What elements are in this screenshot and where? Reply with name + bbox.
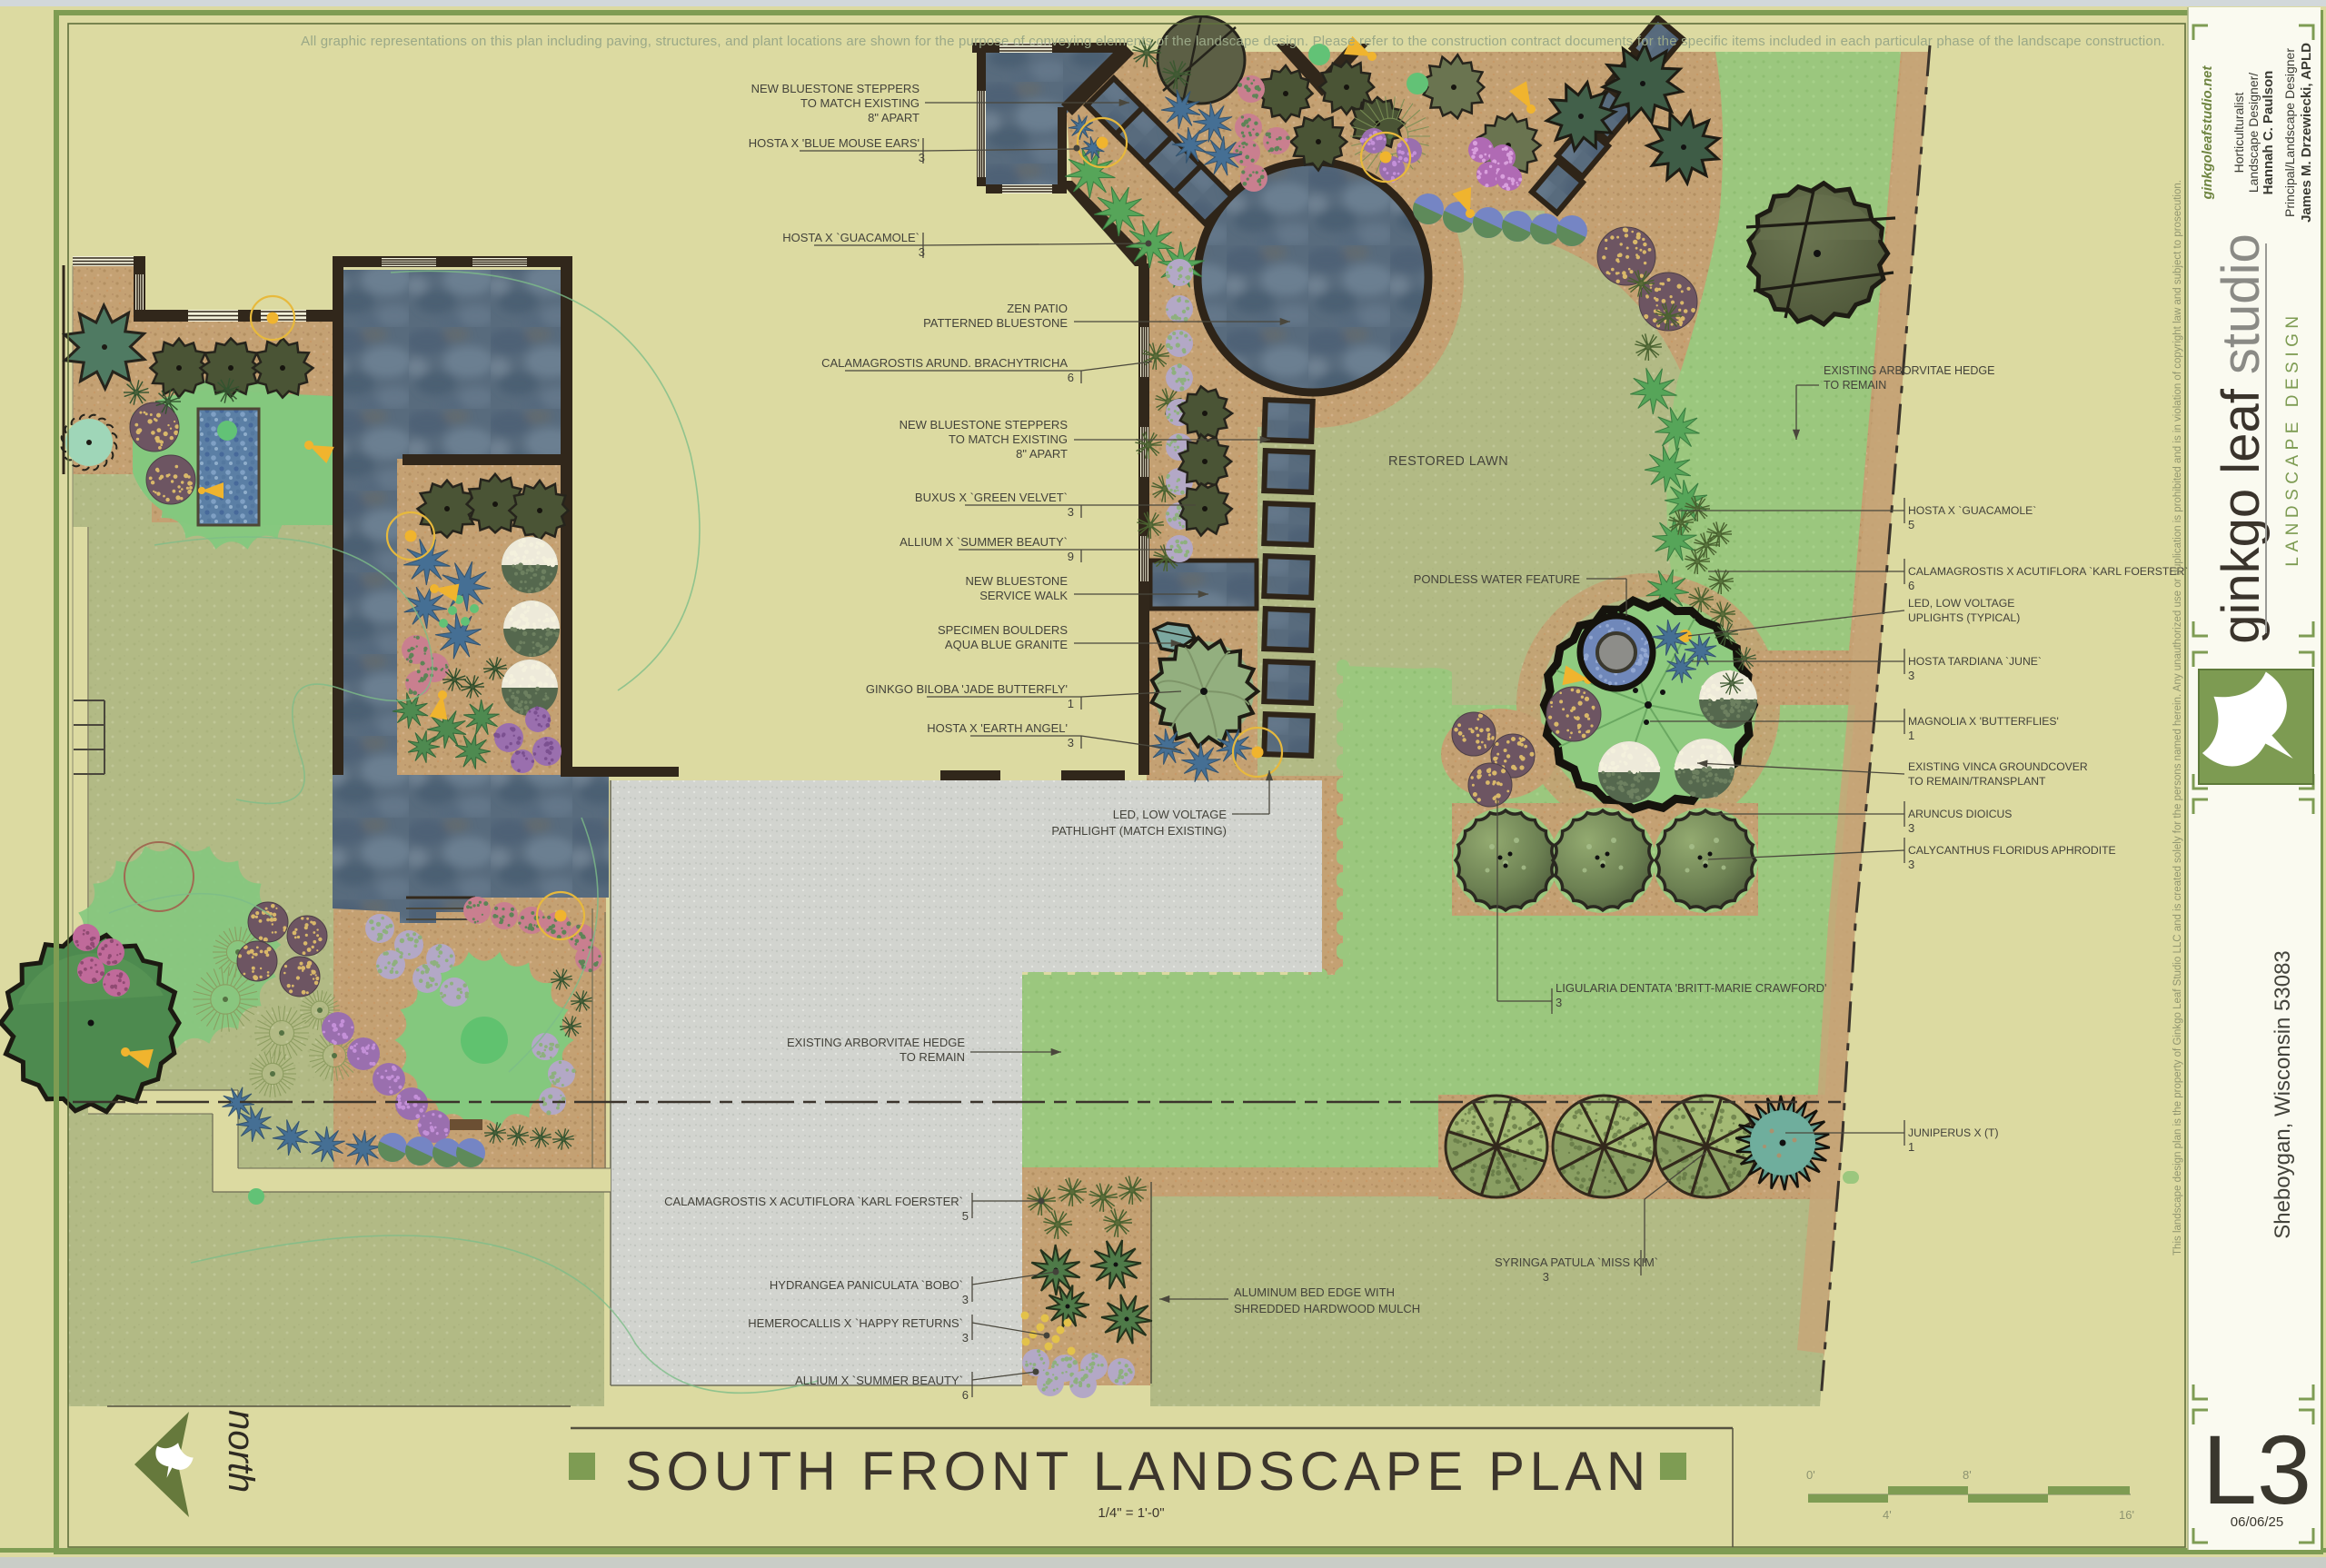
svg-text:6: 6 xyxy=(962,1388,969,1402)
svg-text:PONDLESS WATER FEATURE: PONDLESS WATER FEATURE xyxy=(1414,572,1581,586)
svg-text:ginkgoleafstudio.net: ginkgoleafstudio.net xyxy=(2200,65,2215,201)
svg-text:1: 1 xyxy=(1908,1140,1914,1154)
svg-text:EXISTING ARBORVITAE HEDGE: EXISTING ARBORVITAE HEDGE xyxy=(1824,364,1994,377)
svg-text:HOSTA X 'BLUE MOUSE EARS': HOSTA X 'BLUE MOUSE EARS' xyxy=(749,136,919,150)
svg-text:EXISTING VINCA GROUNDCOVER: EXISTING VINCA GROUNDCOVER xyxy=(1908,760,2088,773)
svg-text:3: 3 xyxy=(1068,505,1074,519)
svg-text:8" APART: 8" APART xyxy=(868,111,919,124)
svg-text:north: north xyxy=(221,1410,261,1493)
svg-text:LED, LOW VOLTAGE: LED, LOW VOLTAGE xyxy=(1113,808,1228,821)
svg-text:8" APART: 8" APART xyxy=(1016,447,1068,461)
svg-text:9: 9 xyxy=(1068,550,1074,563)
svg-text:ALLIUM X `SUMMER BEAUTY`: ALLIUM X `SUMMER BEAUTY` xyxy=(900,535,1068,549)
svg-text:SYRINGA PATULA `MISS KIM`: SYRINGA PATULA `MISS KIM` xyxy=(1495,1255,1658,1269)
svg-text:HOSTA X `GUACAMOLE`: HOSTA X `GUACAMOLE` xyxy=(1908,504,2036,517)
svg-text:3: 3 xyxy=(1908,821,1914,835)
svg-text:8': 8' xyxy=(1963,1468,1972,1482)
svg-text:JUNIPERUS X (T): JUNIPERUS X (T) xyxy=(1908,1126,1999,1139)
svg-text:PATTERNED BLUESTONE: PATTERNED BLUESTONE xyxy=(923,316,1068,330)
svg-text:ALUMINUM BED EDGE WITH: ALUMINUM BED EDGE WITH xyxy=(1234,1285,1395,1299)
svg-text:06/06/25: 06/06/25 xyxy=(2231,1514,2283,1530)
svg-text:All graphic representations on: All graphic representations on this plan… xyxy=(301,34,2165,49)
svg-text:L3: L3 xyxy=(2202,1414,2311,1524)
svg-text:NEW BLUESTONE STEPPERS: NEW BLUESTONE STEPPERS xyxy=(751,82,920,95)
svg-text:ARUNCUS DIOICUS: ARUNCUS DIOICUS xyxy=(1908,808,2012,820)
svg-text:Landscape Designer/: Landscape Designer/ xyxy=(2246,73,2261,193)
svg-text:16': 16' xyxy=(2119,1508,2134,1522)
svg-text:UPLIGHTS (TYPICAL): UPLIGHTS (TYPICAL) xyxy=(1908,611,2020,624)
svg-text:HOSTA X `GUACAMOLE`: HOSTA X `GUACAMOLE` xyxy=(782,231,919,244)
svg-text:TO MATCH EXISTING: TO MATCH EXISTING xyxy=(800,96,919,110)
svg-text:ginkgo leaf studio: ginkgo leaf studio xyxy=(2212,233,2271,643)
svg-text:1: 1 xyxy=(1908,729,1914,742)
svg-text:1: 1 xyxy=(1068,697,1074,710)
svg-text:HEMEROCALLIS X `HAPPY RETURNS`: HEMEROCALLIS X `HAPPY RETURNS` xyxy=(748,1316,963,1330)
svg-text:SPECIMEN BOULDERS: SPECIMEN BOULDERS xyxy=(938,623,1068,637)
svg-text:Hannah C. Paulson: Hannah C. Paulson xyxy=(2261,71,2276,195)
svg-text:3: 3 xyxy=(962,1331,969,1345)
svg-text:Sheboygan, Wisconsin 53083: Sheboygan, Wisconsin 53083 xyxy=(2271,950,2295,1239)
svg-text:CALAMAGROSTIS X ACUTIFLORA `KA: CALAMAGROSTIS X ACUTIFLORA `KARL FOERSTE… xyxy=(1908,565,2188,578)
svg-text:James M. Drzewiecki, APLD: James M. Drzewiecki, APLD xyxy=(2299,43,2314,223)
svg-text:TO REMAIN: TO REMAIN xyxy=(900,1050,965,1064)
svg-text:6: 6 xyxy=(1908,579,1914,592)
svg-text:5: 5 xyxy=(1908,518,1914,531)
svg-text:5: 5 xyxy=(962,1209,969,1223)
svg-text:3: 3 xyxy=(1556,996,1562,1009)
svg-text:3: 3 xyxy=(919,151,925,164)
svg-text:4': 4' xyxy=(1883,1508,1892,1522)
svg-text:TO REMAIN: TO REMAIN xyxy=(1824,379,1886,392)
svg-text:3: 3 xyxy=(1908,858,1914,871)
svg-text:ALLIUM X `SUMMER BEAUTY`: ALLIUM X `SUMMER BEAUTY` xyxy=(795,1374,963,1387)
svg-text:CALAMAGROSTIS ARUND. BRACHYTRI: CALAMAGROSTIS ARUND. BRACHYTRICHA xyxy=(821,356,1068,370)
svg-text:HOSTA TARDIANA `JUNE`: HOSTA TARDIANA `JUNE` xyxy=(1908,655,2042,668)
svg-text:NEW BLUESTONE STEPPERS: NEW BLUESTONE STEPPERS xyxy=(900,418,1069,432)
svg-text:ZEN PATIO: ZEN PATIO xyxy=(1007,302,1068,315)
svg-text:LED, LOW VOLTAGE: LED, LOW VOLTAGE xyxy=(1908,597,2014,610)
svg-text:AQUA BLUE GRANITE: AQUA BLUE GRANITE xyxy=(945,638,1068,651)
svg-text:BUXUS X `GREEN VELVET`: BUXUS X `GREEN VELVET` xyxy=(915,491,1068,504)
svg-text:3: 3 xyxy=(1068,736,1074,749)
svg-text:SOUTH FRONT LANDSCAPE PLAN: SOUTH FRONT LANDSCAPE PLAN xyxy=(625,1441,1651,1502)
svg-text:MAGNOLIA X 'BUTTERFLIES': MAGNOLIA X 'BUTTERFLIES' xyxy=(1908,715,2059,728)
svg-text:SHREDDED HARDWOOD MULCH: SHREDDED HARDWOOD MULCH xyxy=(1234,1302,1420,1315)
svg-text:3: 3 xyxy=(962,1293,969,1306)
svg-text:LIGULARIA DENTATA 'BRITT-MARIE: LIGULARIA DENTATA 'BRITT-MARIE CRAWFORD' xyxy=(1556,981,1826,995)
svg-text:SERVICE WALK: SERVICE WALK xyxy=(979,589,1068,602)
svg-text:This landscape design plan is: This landscape design plan is the proper… xyxy=(2172,180,2183,1255)
svg-text:0': 0' xyxy=(1806,1468,1815,1482)
svg-text:EXISTING ARBORVITAE HEDGE: EXISTING ARBORVITAE HEDGE xyxy=(787,1036,965,1049)
svg-text:Principal/Landscape Designer: Principal/Landscape Designer xyxy=(2282,48,2297,217)
svg-text:1/4" = 1'-0": 1/4" = 1'-0" xyxy=(1098,1505,1164,1521)
svg-text:3: 3 xyxy=(1543,1270,1549,1284)
svg-text:GINKGO BILOBA 'JADE BUTTERFLY': GINKGO BILOBA 'JADE BUTTERFLY' xyxy=(866,682,1068,696)
svg-text:TO REMAIN/TRANSPLANT: TO REMAIN/TRANSPLANT xyxy=(1908,775,2046,788)
svg-text:RESTORED LAWN: RESTORED LAWN xyxy=(1388,454,1508,469)
svg-text:3: 3 xyxy=(919,245,925,259)
svg-text:NEW BLUESTONE: NEW BLUESTONE xyxy=(966,574,1069,588)
svg-text:TO MATCH EXISTING: TO MATCH EXISTING xyxy=(949,432,1068,446)
svg-text:3: 3 xyxy=(1908,669,1914,682)
svg-text:Horticulturalist: Horticulturalist xyxy=(2232,93,2246,174)
svg-text:LANDSCAPE DESIGN: LANDSCAPE DESIGN xyxy=(2283,311,2302,566)
svg-text:HOSTA X 'EARTH ANGEL': HOSTA X 'EARTH ANGEL' xyxy=(927,721,1068,735)
svg-text:CALAMAGROSTIS X ACUTIFLORA `KA: CALAMAGROSTIS X ACUTIFLORA `KARL FOERSTE… xyxy=(664,1195,963,1208)
svg-text:PATHLIGHT (MATCH EXISTING): PATHLIGHT (MATCH EXISTING) xyxy=(1051,824,1227,838)
svg-text:CALYCANTHUS FLORIDUS APHRODITE: CALYCANTHUS FLORIDUS APHRODITE xyxy=(1908,844,2116,857)
svg-text:HYDRANGEA PANICULATA `BOBO`: HYDRANGEA PANICULATA `BOBO` xyxy=(770,1278,963,1292)
svg-text:6: 6 xyxy=(1068,371,1074,384)
